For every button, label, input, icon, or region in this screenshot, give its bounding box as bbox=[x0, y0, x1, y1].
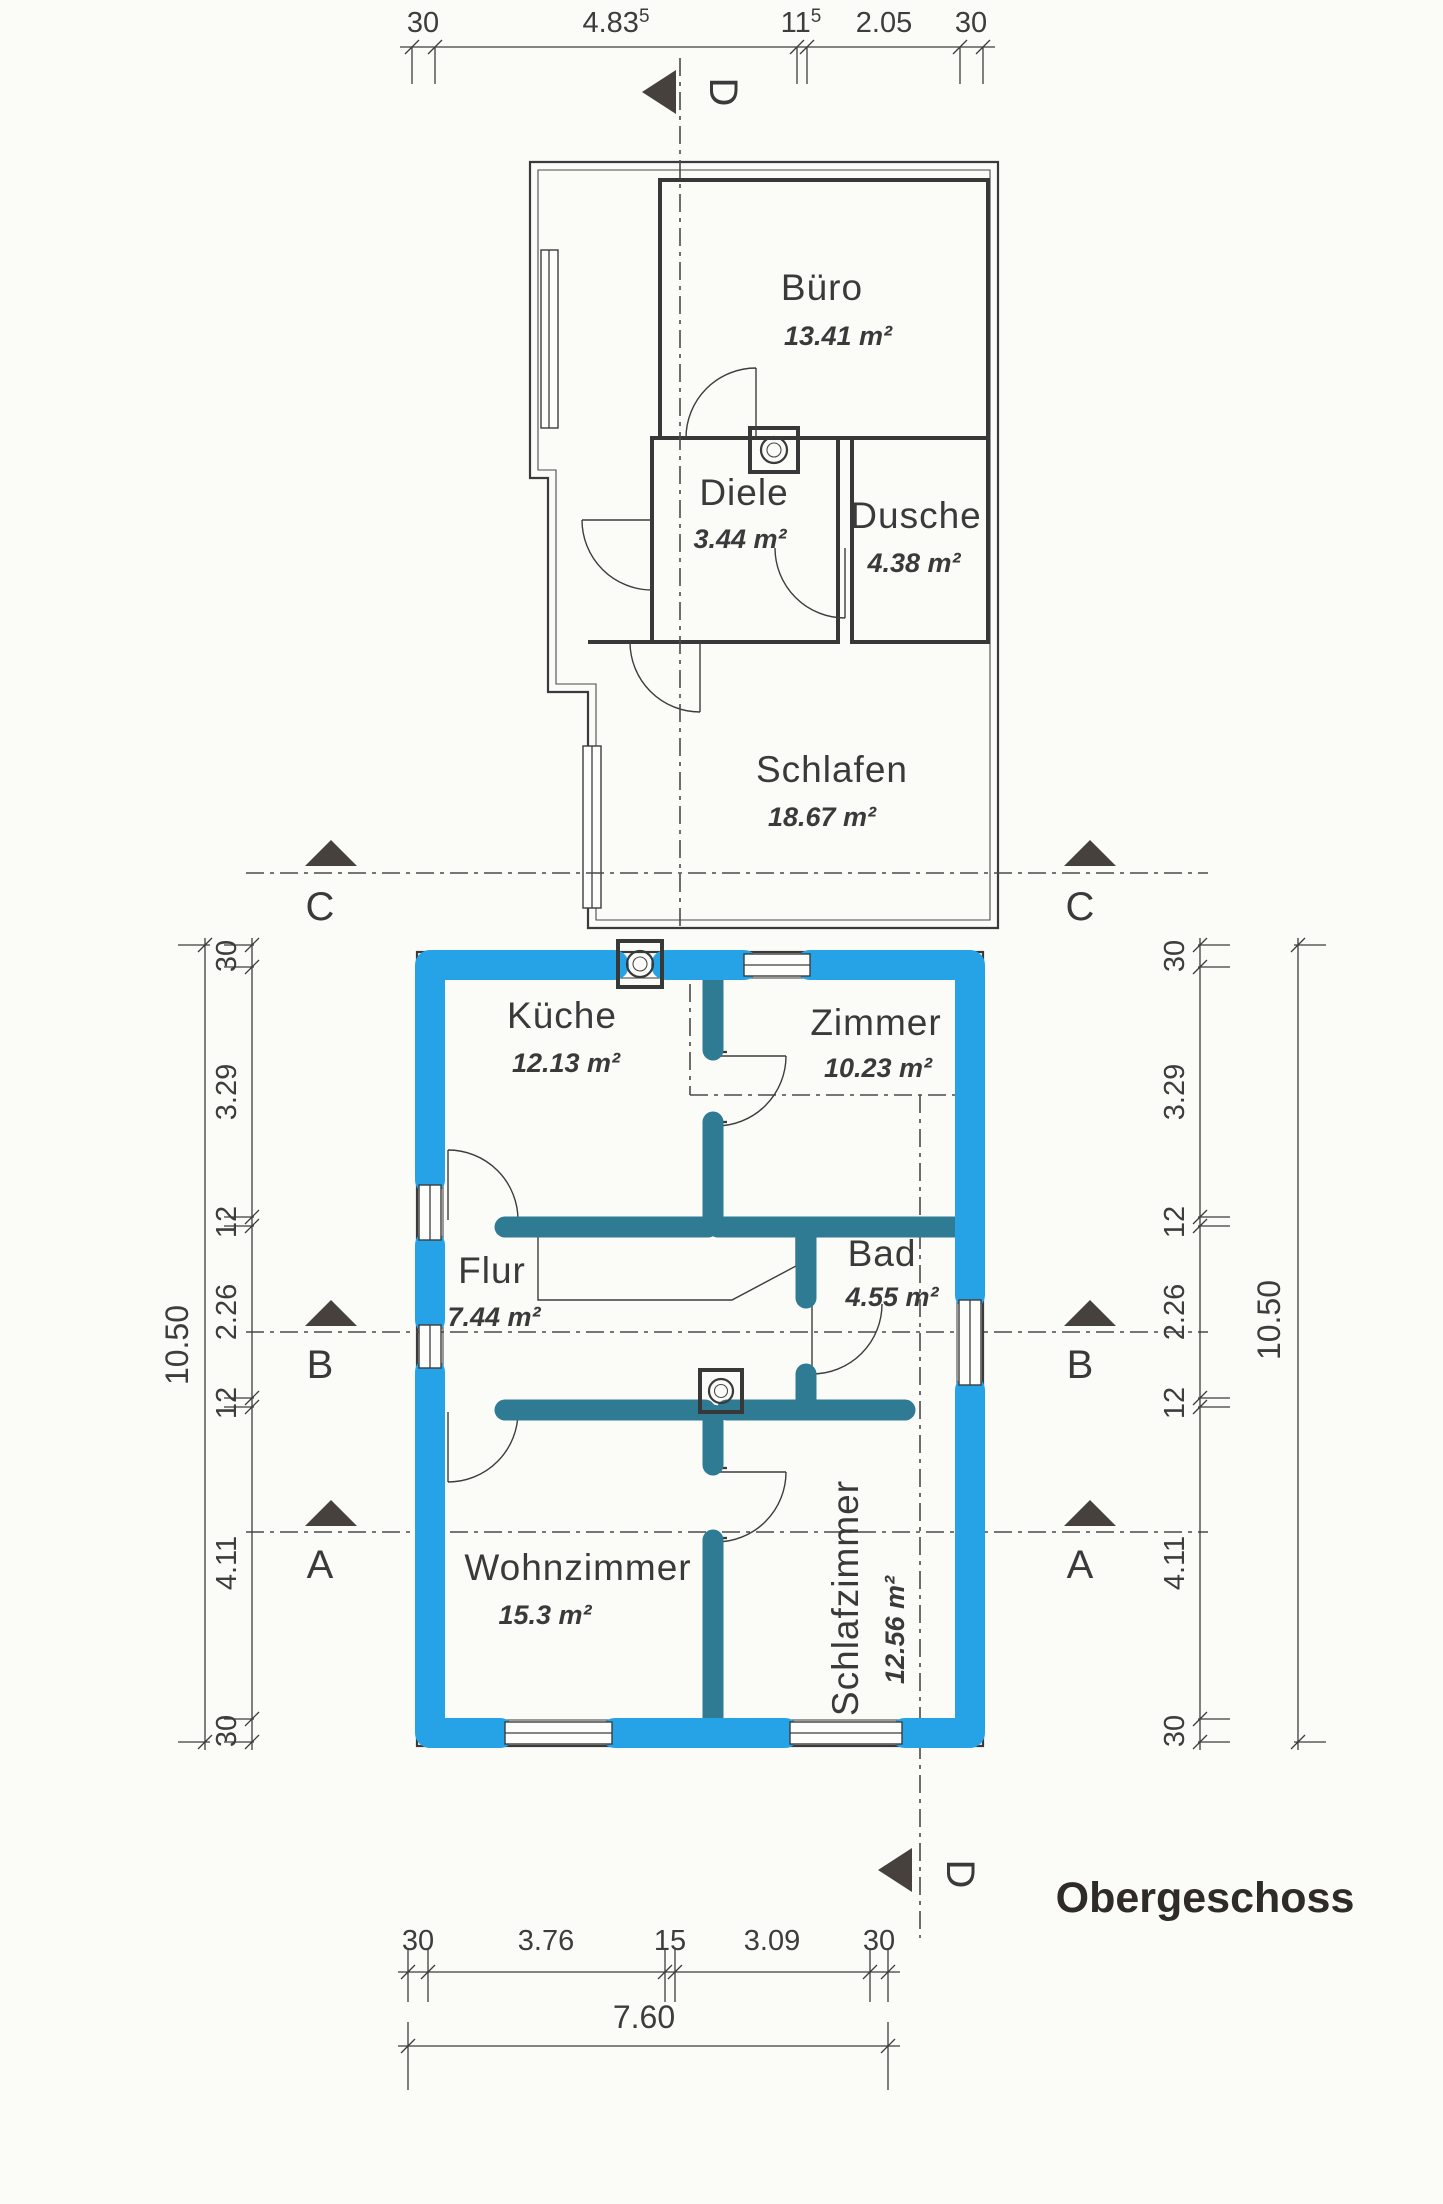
dim-label: 12 bbox=[211, 1206, 243, 1238]
section-line-c: C C bbox=[246, 840, 1208, 929]
dimension-chain-left: 30 3.29 12 2.26 12 4.11 30 10.50 bbox=[159, 938, 259, 1750]
dim-label: 30 bbox=[407, 7, 439, 39]
room-dusche-walls bbox=[852, 438, 988, 642]
room-area-diele: 3.44 m² bbox=[693, 524, 787, 554]
section-label-a-left: A bbox=[307, 1543, 334, 1587]
dim-total-label: 10.50 bbox=[159, 1305, 195, 1385]
door-swing-wohnzimmer bbox=[448, 1412, 518, 1482]
section-label-d-bottom: D bbox=[938, 1860, 982, 1889]
dim-label: 30 bbox=[402, 1925, 434, 1957]
room-area-bad: 4.55 m² bbox=[844, 1282, 939, 1312]
section-arrow-c-right-icon bbox=[1064, 840, 1116, 866]
dim-total-label: 10.50 bbox=[1251, 1280, 1287, 1360]
room-name-zimmer: Zimmer bbox=[810, 1002, 941, 1043]
section-label-c-left: C bbox=[306, 885, 335, 929]
room-name-schlafen: Schlafen bbox=[756, 749, 908, 790]
section-line-b: B B bbox=[246, 1300, 1208, 1387]
section-label-b-right: B bbox=[1067, 1343, 1094, 1387]
dim-label: 4.11 bbox=[1159, 1536, 1191, 1590]
room-name-flur: Flur bbox=[458, 1250, 526, 1291]
section-label-d-top: D bbox=[701, 78, 745, 107]
lower-floor-plan: B B A A bbox=[246, 941, 1208, 1746]
stairs-outline bbox=[538, 1236, 796, 1300]
window-symbol-bottom-1 bbox=[505, 1722, 612, 1744]
dim-label: 30 bbox=[1159, 940, 1191, 972]
dim-label: 115 bbox=[781, 6, 822, 39]
window-symbol-upper-1 bbox=[541, 250, 558, 428]
section-arrow-d-top-icon bbox=[642, 70, 676, 114]
dimension-chain-right: 30 3.29 12 2.26 12 4.11 30 10.50 bbox=[1159, 938, 1326, 1750]
section-line-a: A A bbox=[246, 1500, 1208, 1587]
room-name-dusche: Dusche bbox=[850, 495, 981, 536]
window-symbol-right bbox=[959, 1300, 981, 1385]
dim-label: 12 bbox=[1159, 1387, 1191, 1419]
section-arrow-d-bottom-icon bbox=[878, 1848, 912, 1892]
room-area-kueche: 12.13 m² bbox=[512, 1048, 621, 1078]
door-swing-dusche bbox=[775, 548, 845, 618]
section-arrow-b-left-icon bbox=[305, 1300, 357, 1326]
room-name-schlafzimmer: Schlafzimmer bbox=[825, 1480, 866, 1716]
room-area-buero: 13.41 m² bbox=[784, 321, 893, 351]
dim-label: 2.05 bbox=[856, 7, 912, 39]
door-swing-diele-sued bbox=[630, 642, 700, 712]
dim-total-label: 7.60 bbox=[613, 1999, 675, 2035]
section-label-b-left: B bbox=[307, 1343, 334, 1387]
dim-label: 3.29 bbox=[211, 1064, 243, 1120]
window-symbol-top bbox=[744, 954, 810, 976]
dimension-chain-top: 30 4.835 115 2.05 30 bbox=[400, 6, 995, 84]
dim-label: 12 bbox=[211, 1387, 243, 1419]
section-label-a-right: A bbox=[1067, 1543, 1094, 1587]
dim-label: 15 bbox=[654, 1925, 686, 1957]
room-name-diele: Diele bbox=[699, 472, 788, 513]
dim-label: 30 bbox=[955, 7, 987, 39]
chimney-icon-upper bbox=[750, 428, 798, 472]
window-symbol-bottom-2 bbox=[790, 1722, 902, 1744]
dim-label: 3.76 bbox=[518, 1925, 574, 1957]
dim-label: 2.26 bbox=[211, 1284, 243, 1340]
dim-label: 3.09 bbox=[744, 1925, 800, 1957]
section-arrow-c-left-icon bbox=[305, 840, 357, 866]
room-name-bad: Bad bbox=[848, 1233, 917, 1274]
room-area-flur: 7.44 m² bbox=[447, 1302, 541, 1332]
floorplan-canvas: C C D D B B A A bbox=[0, 0, 1443, 2204]
room-area-dusche: 4.38 m² bbox=[866, 548, 961, 578]
room-area-schlafen: 18.67 m² bbox=[768, 802, 877, 832]
dim-label: 30 bbox=[863, 1925, 895, 1957]
door-swing-buero bbox=[686, 368, 756, 438]
room-name-buero: Büro bbox=[781, 267, 863, 308]
door-swing-kueche bbox=[448, 1150, 518, 1220]
dim-label: 4.11 bbox=[211, 1536, 243, 1590]
section-arrow-b-right-icon bbox=[1064, 1300, 1116, 1326]
dim-label: 4.835 bbox=[582, 6, 649, 39]
dim-label: 2.26 bbox=[1159, 1284, 1191, 1340]
room-area-wohnzimmer: 15.3 m² bbox=[498, 1600, 592, 1630]
dim-label: 12 bbox=[1159, 1206, 1191, 1238]
section-arrow-a-left-icon bbox=[305, 1500, 357, 1526]
room-area-schlafzimmer: 12.56 m² bbox=[880, 1575, 910, 1684]
window-symbol-upper-2 bbox=[583, 746, 601, 908]
dim-label: 30 bbox=[211, 940, 243, 972]
floorplan-scan-page: C C D D B B A A bbox=[0, 0, 1443, 2204]
dimension-chain-bottom: 30 3.76 15 3.09 30 7.60 bbox=[398, 1925, 900, 2090]
room-name-kueche: Küche bbox=[507, 995, 617, 1036]
window-symbol-left-1 bbox=[419, 1185, 441, 1240]
room-name-wohnzimmer: Wohnzimmer bbox=[464, 1547, 691, 1588]
section-label-c-right: C bbox=[1066, 885, 1095, 929]
section-arrow-a-right-icon bbox=[1064, 1500, 1116, 1526]
dim-label: 3.29 bbox=[1159, 1064, 1191, 1120]
door-swing-diele-west bbox=[582, 520, 652, 590]
room-area-zimmer: 10.23 m² bbox=[824, 1053, 933, 1083]
dim-label: 30 bbox=[1159, 1715, 1191, 1747]
room-buero-walls bbox=[660, 180, 988, 438]
page-title: Obergeschoss bbox=[1056, 1874, 1355, 1922]
dim-label: 30 bbox=[211, 1715, 243, 1747]
door-swing-bad bbox=[812, 1304, 882, 1374]
window-symbol-left-2 bbox=[419, 1325, 441, 1368]
